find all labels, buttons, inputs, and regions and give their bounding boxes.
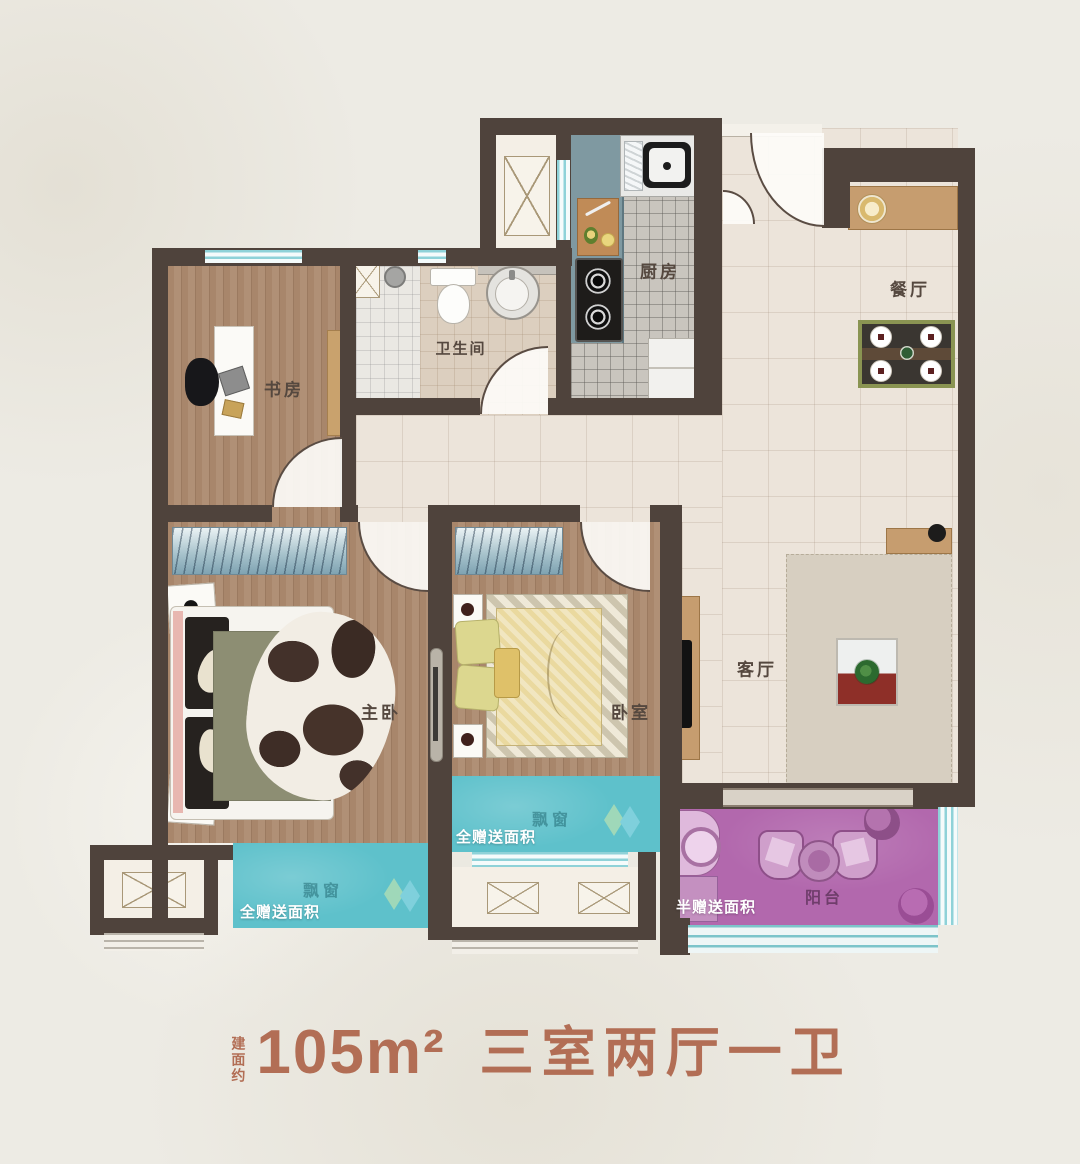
room-label-study: 书房 [264,376,304,401]
room-label-balcony: 阳台 [805,884,843,908]
balcony-plant [898,888,934,924]
mid-platform-window [472,852,628,867]
plate [920,326,942,348]
title-area-value: 105m² [256,1022,445,1084]
drying-rack [624,141,643,191]
plate [920,360,942,382]
wall-segment [428,843,452,940]
wall-segment [548,398,722,415]
fridge [648,338,700,400]
lamp-icon [461,603,474,616]
decor-plate [857,194,887,224]
console-decor [928,524,946,542]
utility-shaft [504,156,550,236]
wall-segment [90,918,218,933]
ac-unit [487,882,539,914]
desk-book [222,399,245,419]
balcony-bottom-window [688,925,938,953]
balcony-chair [758,830,804,880]
burner-icon [585,304,611,330]
table-plant [855,660,879,684]
kitchen-sink-drain [663,162,671,170]
plate [870,360,892,382]
wall-segment [822,148,975,182]
wall-segment [152,505,272,522]
bathroom-window [418,250,446,263]
wall-segment [822,178,850,228]
room-label-living-room: 客厅 [737,656,777,681]
lamp-icon [461,733,474,746]
room-label-bathroom: 卫生间 [435,338,486,359]
wall-tv [430,648,443,762]
room-label-dining: 餐厅 [890,276,930,301]
wall-segment [480,118,496,266]
wall-segment [694,118,722,415]
room-label-bedroom: 卧室 [611,699,651,724]
window-sill [452,940,638,954]
balcony-table [798,840,840,882]
burner-icon [585,268,611,294]
kitchen-sink [643,142,691,188]
dining-table [858,320,955,388]
bay-window-label-master: 飘窗 [303,877,343,901]
avocado [584,227,598,244]
room-label-master-bedroom: 主卧 [361,699,401,724]
wall-segment [90,845,218,860]
wall-segment [660,505,682,807]
lemon-slice [601,233,615,247]
gift-area-label-balcony: 半赠送面积 [676,896,756,917]
wall-tv-screen [433,667,438,741]
nightstand [453,724,483,758]
utility-window [557,160,570,240]
title-area-prefix: 建面约 [228,1036,248,1084]
bay-window-label-second: 飘窗 [532,806,572,830]
shower-head-icon [384,266,406,288]
chair-cushion [765,837,795,867]
wall-segment [340,398,480,415]
bath-sink-basin [495,277,529,311]
wall-segment [340,505,358,522]
balcony-right-window [938,807,958,925]
cutting-board [577,198,619,256]
bath-sink [486,266,540,320]
wall-segment [428,927,656,940]
shower-drain [352,262,380,298]
chair-cushion [840,837,869,866]
fridge-divider [649,367,699,369]
study-desk [214,326,254,436]
ac-unit [578,882,630,914]
wall-segment [480,118,722,135]
centerpiece [900,346,914,360]
master-wardrobe [172,527,347,575]
floor-plan-page: 书房 卫生间 厨房 餐厅 主卧 卧室 客厅 阳台 飘窗 飘窗 全赠送面积 全赠送… [0,0,1080,1164]
laptop [218,366,250,397]
toilet-bowl [437,284,470,324]
plate [870,326,892,348]
desk-chair [185,358,219,406]
bed-blanket-edge [173,611,183,813]
bed-cushion-gold [494,648,520,698]
coffee-table [836,638,898,706]
faucet-icon [509,270,515,280]
title-layout-name: 三室两厅一卫 [480,1026,852,1080]
wall-segment [958,150,975,807]
bed-fold [547,629,589,719]
wall-segment [660,918,690,955]
balcony-sliding-door [723,788,913,807]
study-window [205,250,302,263]
kitchen-sink-counter [620,135,700,197]
gift-area-label-second: 全赠送面积 [456,826,536,847]
gift-area-label-master: 全赠送面积 [240,901,320,922]
room-label-kitchen: 厨房 [640,258,680,283]
window-sill [104,933,204,951]
washer-drum [681,827,721,867]
wall-segment [428,505,580,522]
second-wardrobe [455,527,563,575]
balcony-plant [864,804,900,840]
stove [575,258,623,342]
knife-icon [585,201,611,217]
wall-segment [152,248,168,935]
plan-title: 建面约 105m² 三室两厅一卫 [0,1022,1080,1084]
sideboard [848,186,958,230]
wall-segment [340,266,356,506]
wall-segment [204,845,218,935]
